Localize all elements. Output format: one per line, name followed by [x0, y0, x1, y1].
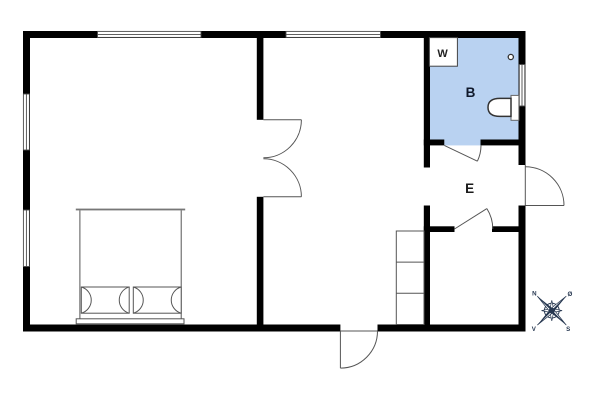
svg-text:E: E	[465, 181, 474, 196]
svg-text:N: N	[532, 290, 537, 297]
svg-text:S: S	[566, 326, 570, 333]
svg-text:Ø: Ø	[567, 291, 572, 298]
svg-text:B: B	[466, 85, 476, 100]
svg-text:W: W	[437, 48, 448, 60]
